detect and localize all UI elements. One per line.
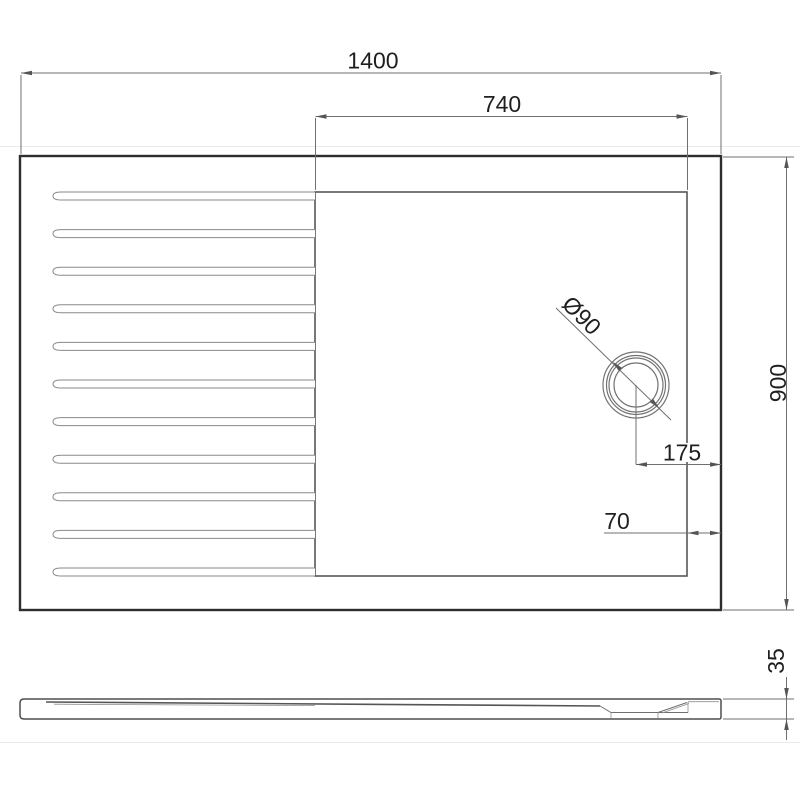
dim-label-drain-offset: 175 — [663, 440, 701, 466]
arrowhead-down — [784, 599, 789, 610]
rib — [53, 493, 315, 501]
dimension-tray-height: 35 — [723, 648, 794, 740]
arrowhead-left — [316, 114, 327, 119]
arrowhead-up — [784, 719, 789, 730]
dim-label-total-depth: 900 — [765, 364, 791, 402]
dim-label-shower-zone-width: 740 — [483, 91, 521, 117]
rib — [53, 530, 315, 538]
arrowhead-up — [784, 157, 789, 168]
shower-tray-technical-drawing: 1400 740 900 175 70 Ø90 — [0, 0, 800, 800]
dimension-total-depth: 900 — [723, 157, 794, 610]
rib — [53, 568, 315, 576]
rib — [53, 380, 315, 388]
side-view — [20, 699, 721, 719]
arrowhead-right — [677, 114, 688, 119]
dim-label-total-width: 1400 — [347, 48, 398, 74]
arrowhead-left — [21, 71, 32, 76]
plan-view — [20, 156, 721, 610]
dim-label-tray-height: 35 — [763, 648, 789, 674]
rib — [53, 230, 315, 238]
rib — [53, 267, 315, 275]
rib — [53, 418, 315, 426]
shower-area-outline — [315, 192, 687, 576]
rib — [53, 192, 315, 200]
technical-drawing-page: 1400 740 900 175 70 Ø90 — [0, 0, 800, 800]
dim-label-border-width: 70 — [604, 508, 630, 534]
rib — [53, 342, 315, 350]
rib — [53, 305, 315, 313]
arrowhead-down — [784, 688, 789, 699]
dimension-total-width: 1400 — [21, 48, 721, 155]
arrowhead-right — [710, 71, 721, 76]
rib — [53, 455, 315, 463]
